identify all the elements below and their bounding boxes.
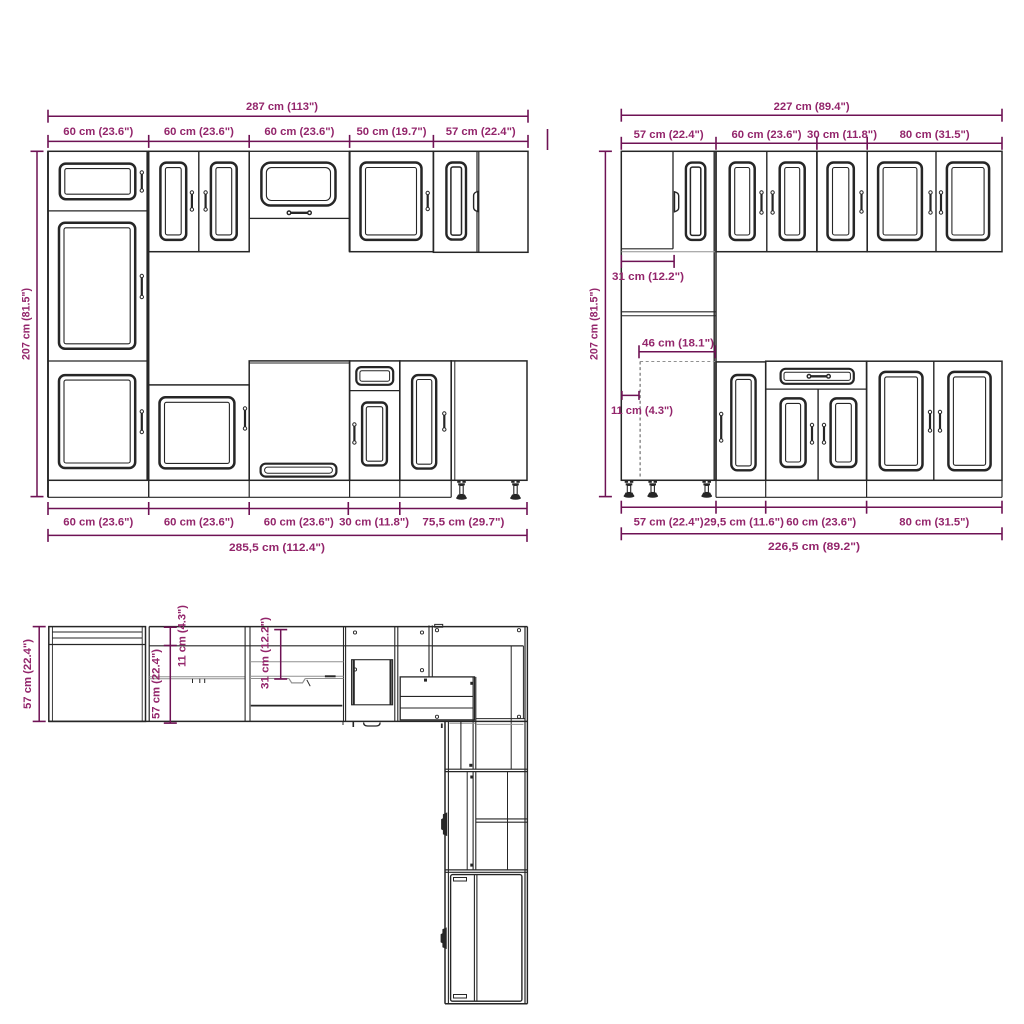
svg-text:60 cm (23.6"): 60 cm (23.6") <box>732 129 802 141</box>
svg-text:60 cm (23.6"): 60 cm (23.6") <box>63 126 133 138</box>
svg-text:75,5 cm (29.7"): 75,5 cm (29.7") <box>422 517 504 529</box>
svg-text:80 cm (31.5"): 80 cm (31.5") <box>900 129 970 141</box>
svg-text:57 cm (22.4"): 57 cm (22.4") <box>22 639 34 709</box>
svg-text:227 cm (89.4"): 227 cm (89.4") <box>774 101 850 113</box>
svg-text:207 cm (81.5"): 207 cm (81.5") <box>21 288 33 360</box>
svg-text:50 cm (19.7"): 50 cm (19.7") <box>357 126 427 138</box>
svg-text:207 cm (81.5"): 207 cm (81.5") <box>589 288 601 360</box>
svg-text:60 cm (23.6"): 60 cm (23.6") <box>164 126 234 138</box>
svg-text:287 cm (113"): 287 cm (113") <box>246 101 318 113</box>
svg-text:60 cm (23.6"): 60 cm (23.6") <box>63 517 133 529</box>
svg-text:60 cm (23.6"): 60 cm (23.6") <box>264 126 334 138</box>
svg-text:57 cm (22.4"): 57 cm (22.4") <box>634 129 704 141</box>
svg-text:46 cm (18.1"): 46 cm (18.1") <box>642 338 714 350</box>
svg-text:285,5 cm (112.4"): 285,5 cm (112.4") <box>229 542 325 554</box>
svg-text:30 cm (11.8"): 30 cm (11.8") <box>339 517 409 529</box>
svg-text:11 cm (4.3"): 11 cm (4.3") <box>177 605 189 667</box>
svg-text:60 cm (23.6"): 60 cm (23.6") <box>786 517 856 529</box>
svg-text:29,5 cm (11.6"): 29,5 cm (11.6") <box>704 517 784 529</box>
svg-text:80 cm (31.5"): 80 cm (31.5") <box>899 517 969 529</box>
svg-text:60 cm (23.6"): 60 cm (23.6") <box>264 517 334 529</box>
svg-text:31 cm (12.2"): 31 cm (12.2") <box>612 271 684 283</box>
svg-text:57 cm (22.4"): 57 cm (22.4") <box>151 649 163 719</box>
svg-text:11 cm (4.3"): 11 cm (4.3") <box>611 405 673 417</box>
svg-text:57 cm (22.4"): 57 cm (22.4") <box>446 126 516 138</box>
svg-text:31 cm (12.2"): 31 cm (12.2") <box>260 617 272 689</box>
svg-text:57 cm (22.4"): 57 cm (22.4") <box>634 517 704 529</box>
svg-text:226,5 cm (89.2"): 226,5 cm (89.2") <box>768 541 860 553</box>
svg-text:60 cm (23.6"): 60 cm (23.6") <box>164 517 234 529</box>
